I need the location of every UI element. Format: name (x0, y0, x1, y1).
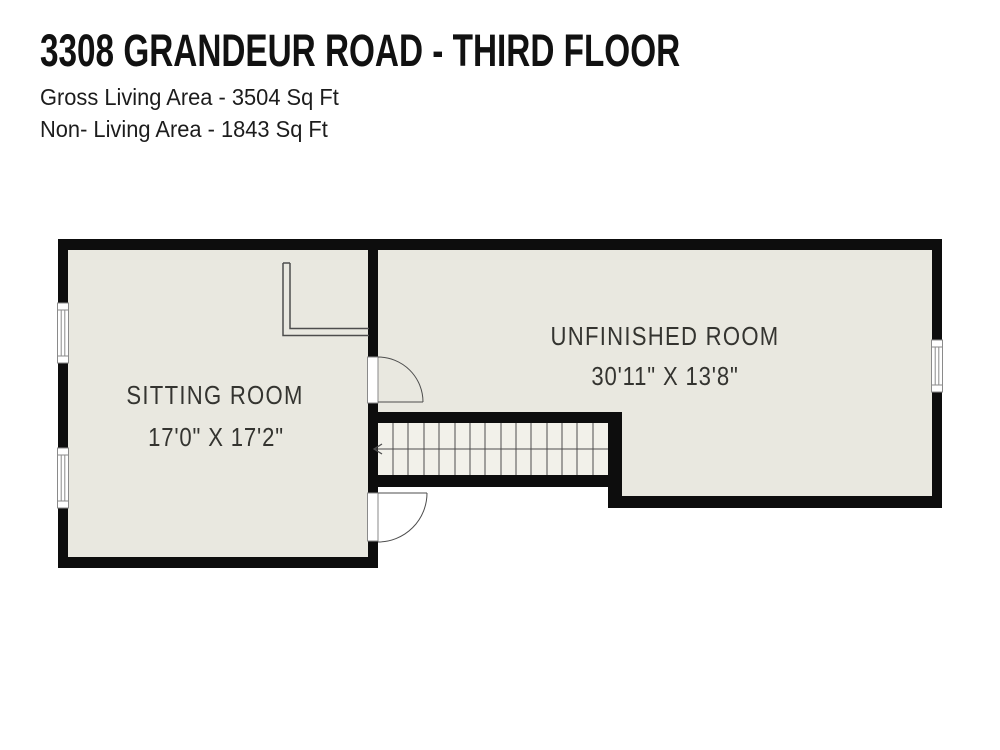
stairwell-floor (374, 416, 614, 480)
window-left-lower-icon (58, 448, 69, 508)
wall-unfinished-bottom (608, 496, 942, 508)
wall-top (58, 239, 942, 250)
window-left-upper-icon (58, 303, 69, 363)
sitting-room-label: SITTING ROOM (126, 381, 303, 410)
unfinished-room-dimensions: 30'11" X 13'8" (591, 362, 738, 391)
floor-plan: SITTING ROOM 17'0" X 17'2" UNFINISHED RO… (0, 0, 1000, 750)
wall-stair-right (608, 412, 622, 508)
unfinished-room-label: UNFINISHED ROOM (551, 322, 780, 351)
sitting-room-dimensions: 17'0" X 17'2" (148, 423, 284, 452)
wall-stair-top (368, 412, 622, 423)
window-right-icon (932, 340, 943, 392)
wall-sitting-bottom (58, 557, 378, 568)
door-lower-icon (368, 493, 428, 542)
wall-stair-bottom (368, 475, 622, 487)
wall-left (58, 239, 68, 568)
